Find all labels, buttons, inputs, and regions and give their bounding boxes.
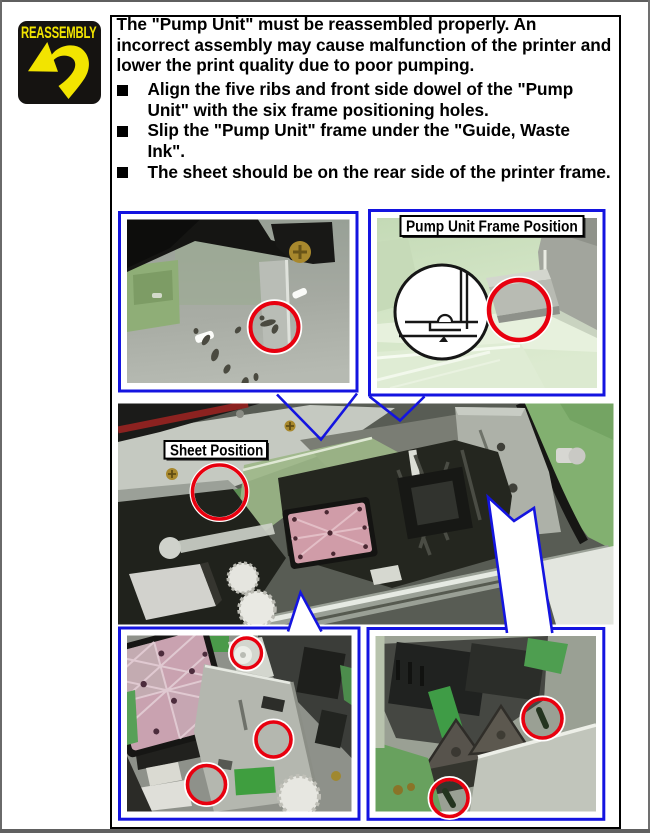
svg-text:Sheet Position: Sheet Position — [170, 442, 263, 459]
svg-text:Pump Unit Frame Position: Pump Unit Frame Position — [406, 218, 578, 236]
